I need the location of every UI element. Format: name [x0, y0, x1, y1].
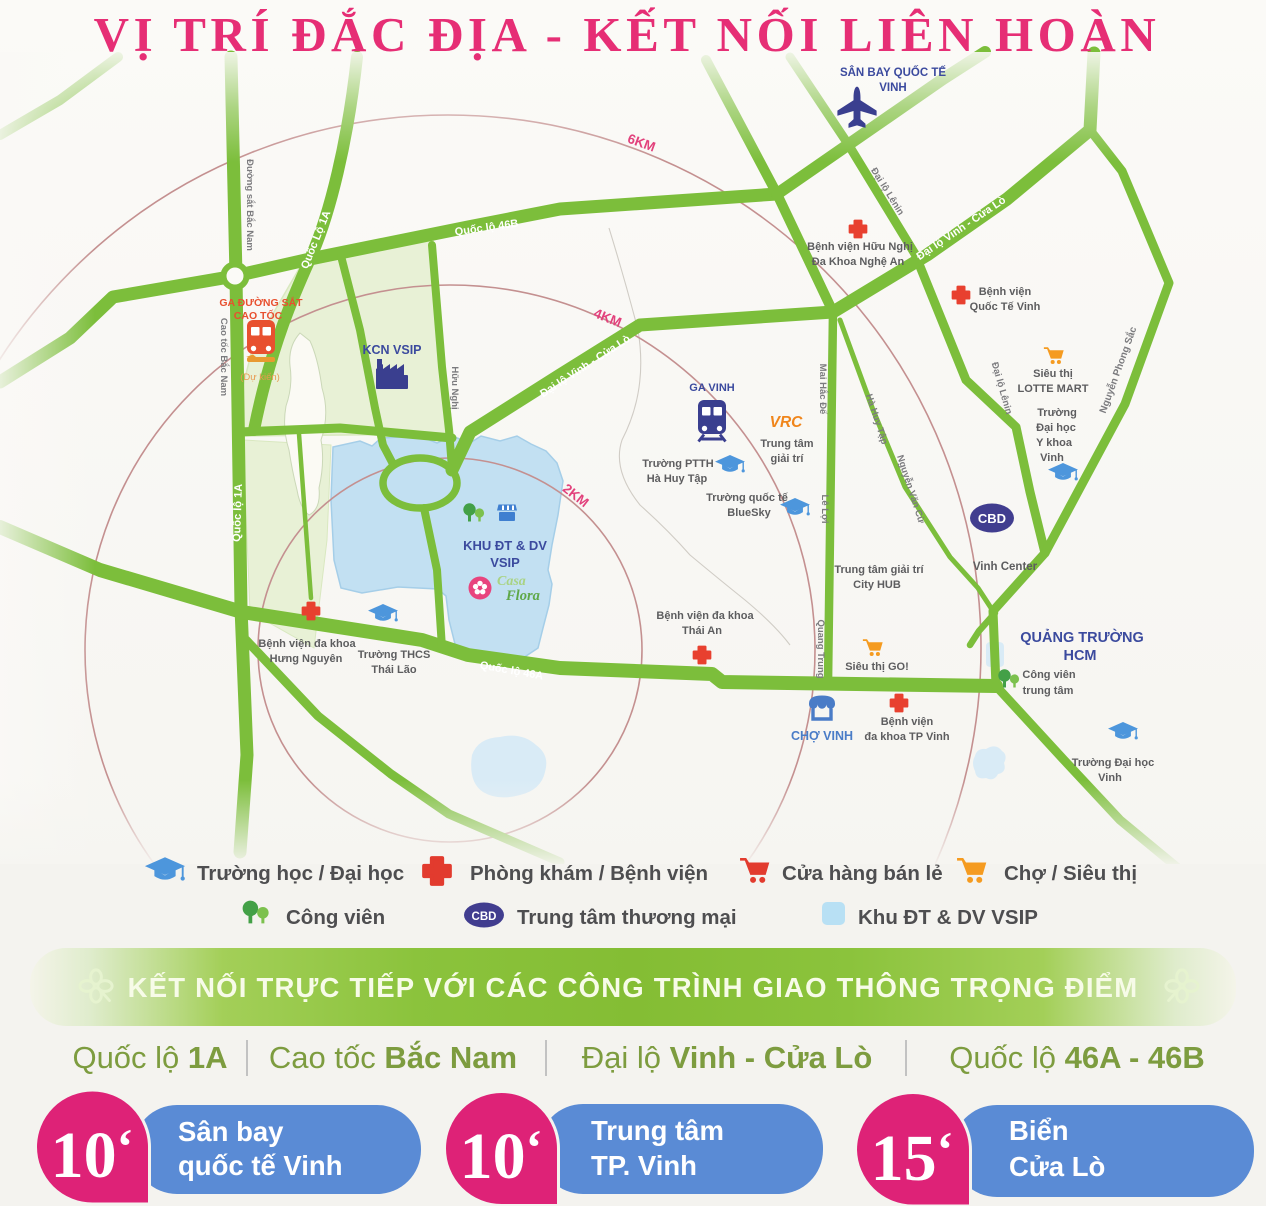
svg-text:đa khoa TP Vinh: đa khoa TP Vinh [864, 731, 949, 743]
svg-text:Hữu Nghị: Hữu Nghị [449, 366, 460, 409]
svg-text:Hưng Nguyên: Hưng Nguyên [270, 653, 343, 665]
svg-text:CBD: CBD [978, 511, 1006, 526]
svg-text:VRC: VRC [770, 414, 804, 431]
svg-text:Công viên: Công viên [1022, 669, 1075, 681]
svg-text:KẾT NỐI TRỰC TIẾP VỚI CÁC CÔNG: KẾT NỐI TRỰC TIẾP VỚI CÁC CÔNG TRÌNH GIA… [128, 971, 1139, 1003]
svg-text:Lê Lợi: Lê Lợi [819, 495, 830, 524]
svg-text:Siêu thị GO!: Siêu thị GO! [845, 661, 909, 673]
svg-text:QUẢNG TRƯỜNG: QUẢNG TRƯỜNG [1020, 628, 1143, 646]
svg-text:City HUB: City HUB [853, 579, 901, 591]
svg-text:Quốc lộ 1A: Quốc lộ 1A [72, 1040, 227, 1075]
svg-text:Y khoa: Y khoa [1036, 437, 1073, 449]
svg-text:Trung tâm: Trung tâm [760, 438, 813, 450]
svg-text:trung tâm: trung tâm [1023, 685, 1074, 697]
svg-text:Chợ / Siêu thị: Chợ / Siêu thị [1004, 862, 1137, 885]
svg-text:KCN VSIP: KCN VSIP [362, 343, 421, 357]
svg-text:Trường THCS: Trường THCS [358, 649, 431, 661]
svg-text:BlueSky: BlueSky [727, 507, 771, 519]
svg-text:CBD: CBD [472, 911, 497, 923]
svg-text:Bệnh viện đa khoa: Bệnh viện đa khoa [656, 610, 754, 622]
svg-text:Quốc lộ 46A - 46B: Quốc lộ 46A - 46B [949, 1040, 1205, 1075]
svg-text:Công viên: Công viên [286, 906, 385, 929]
svg-text:Quang Trung: Quang Trung [815, 619, 826, 678]
svg-text:Vinh: Vinh [1098, 772, 1122, 784]
svg-text:Mai Hắc Đế: Mai Hắc Đế [817, 364, 829, 415]
svg-text:Đa Khoa Nghệ An: Đa Khoa Nghệ An [812, 256, 905, 268]
svg-text:Quốc Tế Vinh: Quốc Tế Vinh [970, 301, 1041, 313]
svg-text:Trường Đại học: Trường Đại học [1072, 757, 1154, 769]
svg-text:Bệnh viện: Bệnh viện [979, 286, 1032, 298]
svg-text:Trung tâm: Trung tâm [591, 1115, 724, 1146]
svg-text:Vinh: Vinh [1040, 452, 1064, 464]
svg-text:Cao tốc Bắc Nam: Cao tốc Bắc Nam [218, 318, 230, 396]
svg-text:Thái An: Thái An [682, 625, 722, 637]
svg-text:Casa: Casa [497, 574, 526, 589]
svg-text:Biển: Biển [1009, 1115, 1069, 1146]
svg-text:Trường PTTH: Trường PTTH [642, 458, 713, 470]
svg-text:Vinh Center: Vinh Center [973, 561, 1038, 573]
svg-text:Cao tốc Bắc Nam: Cao tốc Bắc Nam [269, 1039, 517, 1075]
svg-text:CAO TỐC: CAO TỐC [234, 308, 283, 322]
svg-text:HCM: HCM [1063, 648, 1096, 664]
svg-text:Siêu thị: Siêu thị [1033, 368, 1073, 380]
svg-text:Đường sắt Bắc Nam: Đường sắt Bắc Nam [244, 159, 256, 251]
svg-text:Trường quốc tế: Trường quốc tế [706, 492, 789, 504]
svg-text:Sân bay: Sân bay [178, 1116, 284, 1147]
svg-text:Hà Huy Tập: Hà Huy Tập [647, 473, 708, 485]
svg-text:Cửa Lò: Cửa Lò [1009, 1151, 1105, 1182]
svg-text:giải trí: giải trí [770, 453, 804, 465]
svg-text:Thái Lão: Thái Lão [371, 664, 417, 676]
svg-text:VINH: VINH [879, 82, 906, 94]
svg-text:VỊ TRÍ ĐẮC ĐỊA - KẾT NỐI LIÊN: VỊ TRÍ ĐẮC ĐỊA - KẾT NỐI LIÊN HOÀN [94, 7, 1161, 62]
svg-text:SÂN BAY QUỐC TẾ: SÂN BAY QUỐC TẾ [840, 65, 946, 79]
svg-text:Bệnh viện đa khoa: Bệnh viện đa khoa [258, 638, 356, 650]
svg-text:Trường: Trường [1037, 407, 1077, 419]
svg-text:VSIP: VSIP [490, 555, 520, 570]
svg-text:quốc tế Vinh: quốc tế Vinh [178, 1150, 343, 1181]
svg-text:CHỢ VINH: CHỢ VINH [791, 729, 853, 743]
svg-text:Quốc lộ 1A: Quốc lộ 1A [231, 484, 245, 543]
svg-text:Bệnh viện: Bệnh viện [881, 716, 934, 728]
svg-text:Khu ĐT & DV VSIP: Khu ĐT & DV VSIP [858, 906, 1038, 929]
svg-text:Bệnh viện Hữu Nghị: Bệnh viện Hữu Nghị [807, 241, 913, 253]
svg-text:Flora: Flora [505, 588, 540, 604]
svg-text:(Dự kiến): (Dự kiến) [240, 372, 280, 383]
svg-text:GA ĐƯỜNG SẮT: GA ĐƯỜNG SẮT [219, 296, 303, 309]
svg-text:Trung tâm giải trí: Trung tâm giải trí [834, 564, 924, 576]
svg-text:Cửa hàng bán lẻ: Cửa hàng bán lẻ [782, 862, 943, 885]
svg-text:Phòng khám / Bệnh viện: Phòng khám / Bệnh viện [470, 862, 708, 885]
svg-text:GA VINH: GA VINH [689, 382, 734, 394]
svg-text:KHU ĐT & DV: KHU ĐT & DV [463, 538, 547, 553]
svg-text:Trung tâm thương mại: Trung tâm thương mại [517, 906, 737, 929]
svg-text:LOTTE MART: LOTTE MART [1018, 383, 1089, 395]
svg-text:Đại học: Đại học [1036, 422, 1076, 434]
svg-text:TP. Vinh: TP. Vinh [591, 1150, 697, 1181]
svg-text:Đại lộ Vinh - Cửa Lò: Đại lộ Vinh - Cửa Lò [582, 1040, 873, 1075]
svg-text:Trường học / Đại học: Trường học / Đại học [197, 862, 404, 885]
